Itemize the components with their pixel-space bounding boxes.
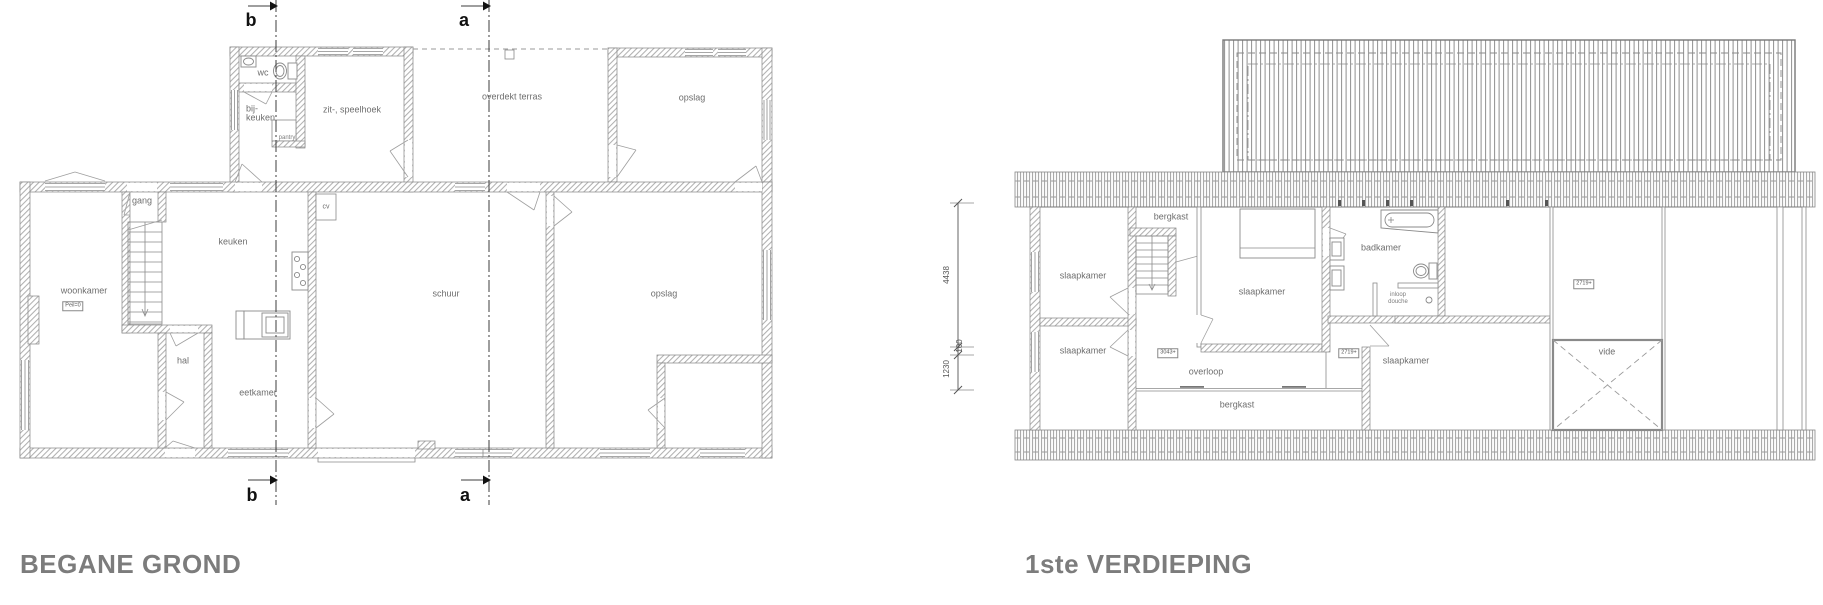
room-label-keuken: keuken	[218, 238, 247, 247]
level-label-3043: 3043+	[1157, 348, 1178, 358]
toilet-icon	[274, 63, 298, 79]
staircase-ground	[128, 220, 162, 324]
room-label-woonkamer: woonkamer	[61, 287, 108, 296]
room-label-slaapkamer-mid: slaapkamer	[1239, 288, 1286, 297]
ground-floor-drawing	[20, 0, 772, 505]
room-label-vide: vide	[1599, 348, 1616, 357]
floor-plan-sheet: b a b a wc bij- keuken pantry zit-, spee…	[0, 0, 1823, 605]
sink-icon	[241, 56, 256, 67]
room-label-wc: wc	[258, 69, 269, 78]
roof-band-top	[1015, 172, 1815, 207]
room-label-bergkast-top: bergkast	[1154, 213, 1189, 222]
level-label-2719-a: 2719+	[1338, 348, 1359, 358]
room-label-opslag-main: opslag	[651, 290, 678, 299]
room-label-opslag-top: opslag	[679, 94, 706, 103]
kitchen-counter	[236, 311, 290, 339]
washbasin-icon-2	[1330, 266, 1344, 290]
level-label-peil: Peil=0	[62, 301, 83, 311]
bed	[1240, 209, 1315, 258]
annex-right-door	[390, 140, 412, 177]
fireplace	[28, 296, 39, 344]
room-label-bergkast-bottom: bergkast	[1220, 401, 1255, 410]
washbasin-icon	[1330, 238, 1344, 260]
pilaster	[418, 441, 435, 449]
section-marker-b-top: b	[246, 11, 257, 29]
room-label-badkamer: badkamer	[1361, 244, 1401, 253]
room-label-schuur: schuur	[432, 290, 459, 299]
roof-band-bottom	[1015, 430, 1815, 460]
dimension-4438: 4438	[943, 266, 951, 284]
level-label-2719-b: 2719+	[1573, 279, 1594, 289]
toilet-icon-first	[1414, 263, 1438, 279]
room-label-cv: cv	[323, 204, 330, 211]
shower-icon	[1426, 297, 1432, 303]
dimension-100: 100	[956, 339, 964, 352]
section-marker-a-bottom: a	[460, 486, 470, 504]
wc-door	[244, 84, 272, 104]
room-label-slaapkamer-bl: slaapkamer	[1060, 347, 1107, 356]
cooktop-icon	[292, 252, 308, 290]
roof-block	[1223, 40, 1795, 172]
room-label-overloop: overloop	[1189, 368, 1224, 377]
opslag-top-door	[609, 145, 636, 177]
room-label-overdekt-terras: overdekt terras	[482, 93, 542, 102]
room-label-slaapkamer-br: slaapkamer	[1383, 357, 1430, 366]
room-label-bijkeuken-2: keuken	[246, 114, 275, 123]
dimension-line	[950, 199, 974, 394]
annex-left-window	[231, 90, 238, 130]
staircase-first	[1136, 236, 1168, 294]
room-label-inloop-1: inloop	[1390, 292, 1406, 298]
ground-floor-title: BEGANE GROND	[20, 551, 241, 577]
dimension-1230: 1230	[943, 360, 951, 378]
terras-column	[505, 50, 514, 59]
room-label-zit-speelhoek: zit-, speelhoek	[323, 106, 381, 115]
first-floor-title: 1ste VERDIEPING	[1025, 551, 1252, 577]
section-marker-a-top: a	[459, 11, 469, 29]
section-marker-b-bottom: b	[247, 486, 258, 504]
room-label-pantry: pantry	[279, 135, 296, 141]
bathtub-icon	[1381, 210, 1438, 233]
room-label-hal: hal	[177, 357, 189, 366]
room-label-gang: gang	[132, 197, 152, 206]
room-label-eetkamer: eetkamer	[239, 389, 277, 398]
room-label-inloop-2: douche	[1388, 299, 1408, 305]
section-line-a	[461, 0, 491, 505]
floor-plan-linework	[0, 0, 1823, 605]
room-label-slaapkamer-tl: slaapkamer	[1060, 272, 1107, 281]
